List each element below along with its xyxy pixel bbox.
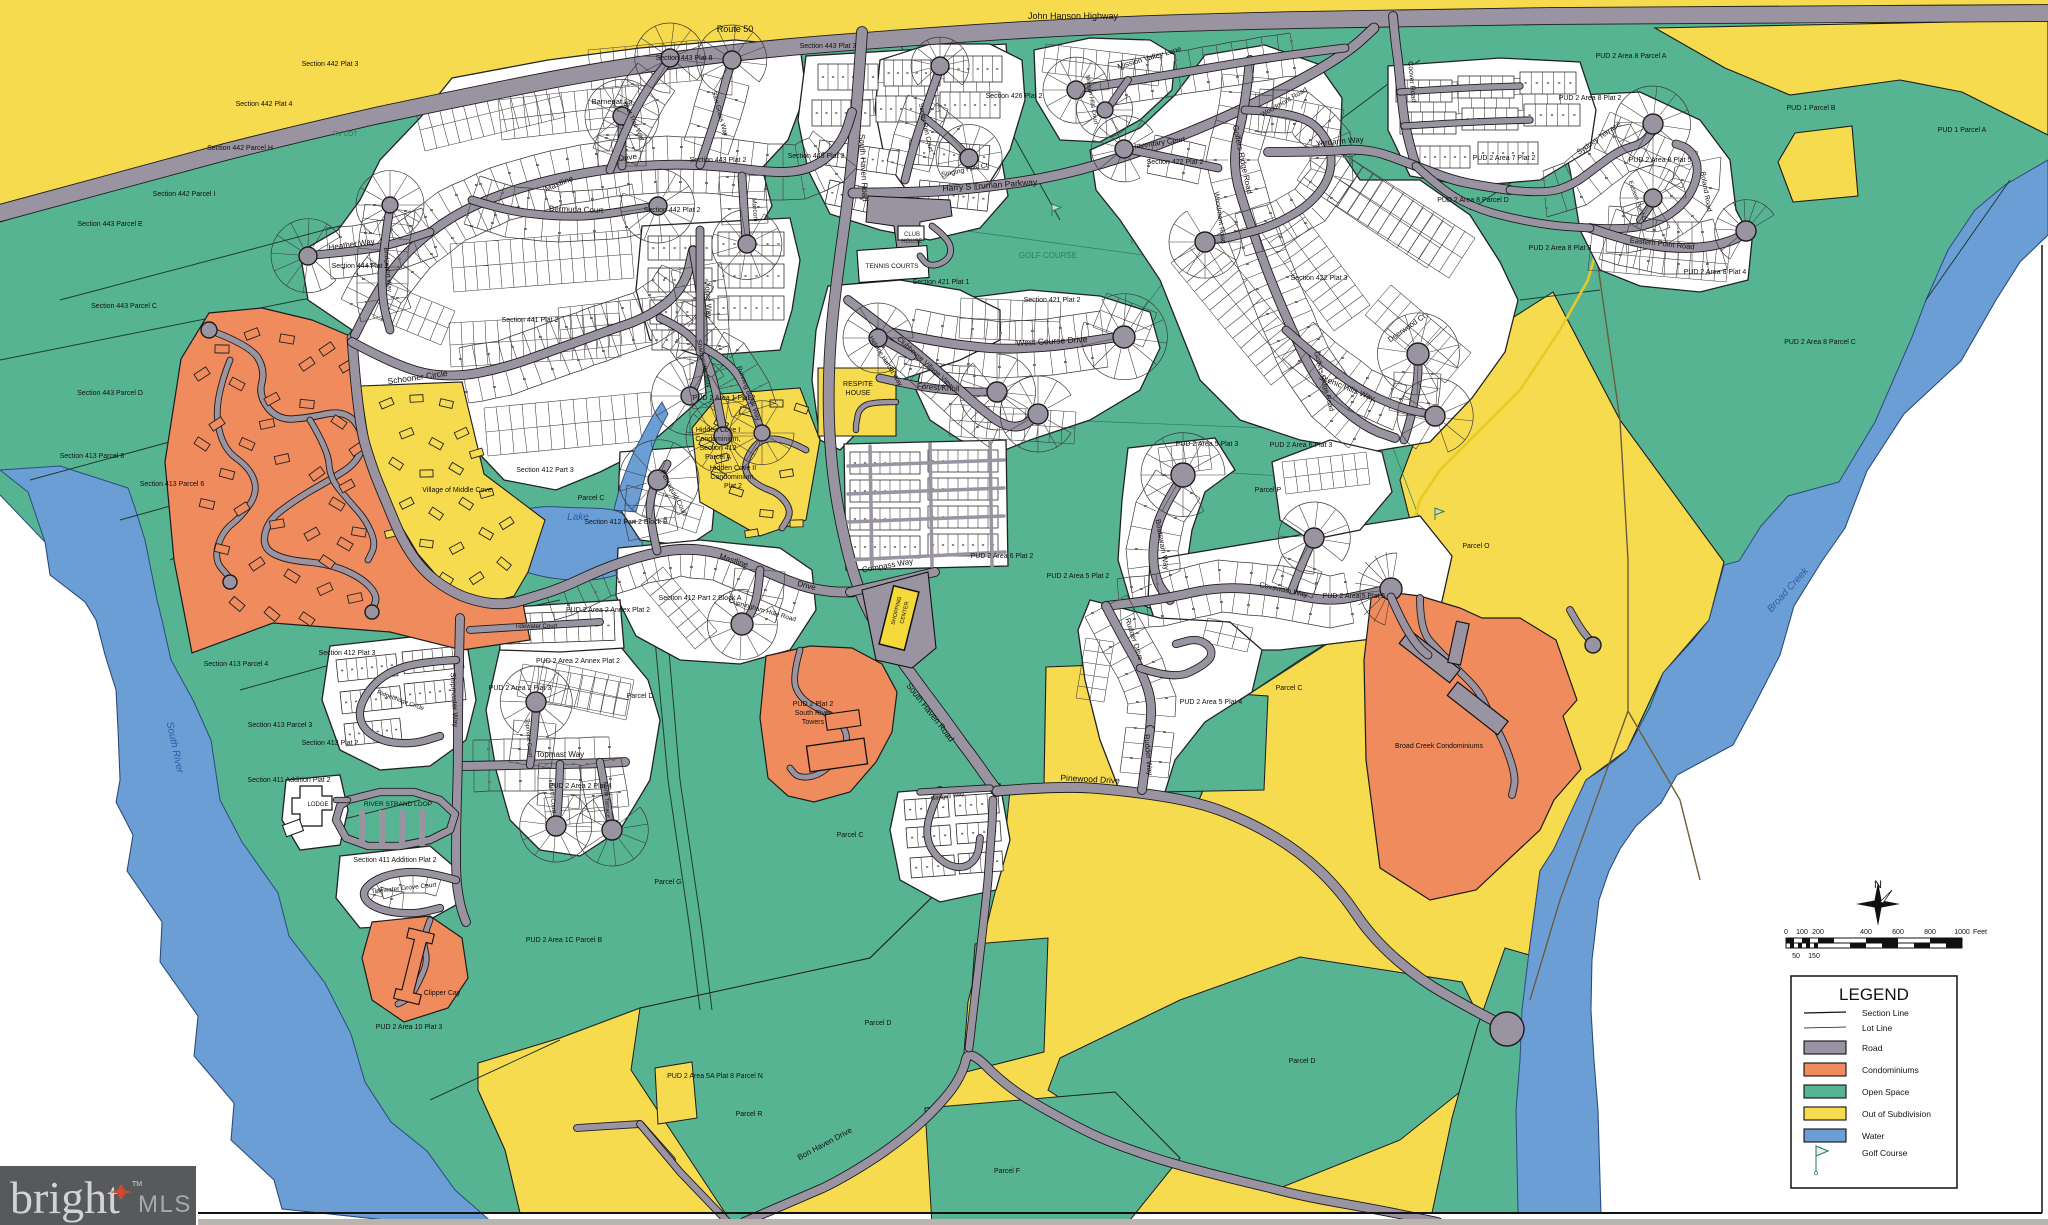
svg-text:PUD 2 Area 5 Plat 5: PUD 2 Area 5 Plat 5 bbox=[1323, 593, 1386, 600]
svg-text:PUD 2 Area 8 Parcel D: PUD 2 Area 8 Parcel D bbox=[1437, 197, 1509, 204]
svg-text:Broad Creek Condominiums: Broad Creek Condominiums bbox=[1395, 743, 1483, 750]
svg-text:South River: South River bbox=[795, 710, 832, 717]
svg-text:Section 413 Parcel 6: Section 413 Parcel 6 bbox=[140, 481, 205, 488]
svg-text:Parcel D: Parcel D bbox=[1289, 1058, 1316, 1065]
svg-text:PUD 2 Area 7 Plat 2: PUD 2 Area 7 Plat 2 bbox=[1473, 155, 1536, 162]
svg-text:Parcel O: Parcel O bbox=[1462, 543, 1490, 550]
svg-text:Parcel C: Parcel C bbox=[837, 832, 864, 839]
svg-text:PUD 1 Parcel B: PUD 1 Parcel B bbox=[1786, 105, 1835, 112]
svg-text:PUD 2 Area 5 Plat 3: PUD 2 Area 5 Plat 3 bbox=[1176, 441, 1239, 448]
svg-text:Section 443 Parcel D: Section 443 Parcel D bbox=[77, 390, 143, 397]
svg-text:PUD 2 Area 8 Parcel A: PUD 2 Area 8 Parcel A bbox=[1596, 53, 1667, 60]
svg-text:Section 442 Parcel I: Section 442 Parcel I bbox=[153, 191, 216, 198]
svg-text:Section 411 Addition Plat 2: Section 411 Addition Plat 2 bbox=[247, 777, 330, 784]
svg-text:CLUB: CLUB bbox=[904, 232, 920, 238]
svg-text:Section 445 Plat 2: Section 445 Plat 2 bbox=[788, 153, 845, 160]
svg-text:Section 413 Parcel 8: Section 413 Parcel 8 bbox=[60, 453, 125, 460]
svg-text:0: 0 bbox=[1784, 929, 1788, 936]
svg-text:Plat 2: Plat 2 bbox=[724, 483, 742, 490]
svg-text:Section 413 Parcel 3: Section 413 Parcel 3 bbox=[248, 722, 313, 729]
svg-text:Section 422 Plat 3: Section 422 Plat 3 bbox=[1291, 275, 1348, 282]
svg-text:PUD 2 Area 8 Parcel C: PUD 2 Area 8 Parcel C bbox=[1784, 339, 1856, 346]
svg-text:Parcel C: Parcel C bbox=[578, 495, 605, 502]
svg-text:TENNIS COURTS: TENNIS COURTS bbox=[866, 263, 920, 270]
svg-text:Section 442 Plat 3: Section 442 Plat 3 bbox=[302, 61, 359, 68]
svg-text:Section 441 Plat 2: Section 441 Plat 2 bbox=[502, 317, 559, 324]
svg-text:Section 443 Parcel C: Section 443 Parcel C bbox=[91, 303, 157, 310]
svg-text:Parcel C: Parcel C bbox=[1276, 685, 1303, 692]
svg-text:Towers: Towers bbox=[802, 719, 825, 726]
svg-text:John Hanson Highway: John Hanson Highway bbox=[1028, 11, 1119, 21]
svg-text:Section 443 Plat 2: Section 443 Plat 2 bbox=[690, 157, 747, 164]
svg-text:LEGEND: LEGEND bbox=[1839, 985, 1909, 1004]
svg-text:PUD 2 Area 6 Plat 2: PUD 2 Area 6 Plat 2 bbox=[971, 553, 1034, 560]
svg-text:Lot Line: Lot Line bbox=[1862, 1023, 1893, 1033]
svg-text:HOUSE: HOUSE bbox=[846, 390, 871, 397]
svg-text:Topmast Way: Topmast Way bbox=[536, 750, 584, 759]
svg-text:Parcel D: Parcel D bbox=[627, 693, 654, 700]
svg-text:PUD 2 Area 1 Plat 2: PUD 2 Area 1 Plat 2 bbox=[693, 395, 756, 402]
svg-text:200: 200 bbox=[1812, 929, 1824, 936]
svg-text:Section 412 Plat 3: Section 412 Plat 3 bbox=[319, 650, 376, 657]
svg-text:Section 444 Plat 2: Section 444 Plat 2 bbox=[332, 263, 389, 270]
svg-text:Section 421 Plat 1: Section 421 Plat 1 bbox=[913, 279, 970, 286]
svg-text:Section 442 Plat 4: Section 442 Plat 4 bbox=[236, 101, 293, 108]
svg-text:PUD 2 Area 6 Plat 3: PUD 2 Area 6 Plat 3 bbox=[1270, 442, 1333, 449]
svg-text:GOLF COURSE: GOLF COURSE bbox=[1019, 251, 1077, 260]
svg-text:Parcel P: Parcel P bbox=[1255, 487, 1282, 494]
svg-text:Section 442 Plat 2: Section 442 Plat 2 bbox=[644, 207, 701, 214]
svg-text:Section 443 Plat 8: Section 443 Plat 8 bbox=[656, 55, 713, 62]
svg-text:PUD 2 Area 8 Plat 4: PUD 2 Area 8 Plat 4 bbox=[1684, 269, 1747, 276]
svg-text:PUD 2 Area 2 Plat 3: PUD 2 Area 2 Plat 3 bbox=[489, 685, 552, 692]
svg-text:PUD 2 Area 5 Plat 2: PUD 2 Area 5 Plat 2 bbox=[1047, 573, 1110, 580]
svg-text:HOUSE: HOUSE bbox=[901, 239, 922, 245]
svg-text:Road: Road bbox=[1862, 1043, 1883, 1053]
svg-text:PUD 2 Area 1C Parcel B: PUD 2 Area 1C Parcel B bbox=[526, 937, 603, 944]
svg-text:Section 426 Plat 2: Section 426 Plat 2 bbox=[986, 93, 1043, 100]
svg-text:PUD 2 Area 5A Plat 8 Parcel N: PUD 2 Area 5A Plat 8 Parcel N bbox=[667, 1073, 763, 1080]
svg-text:Condominium,: Condominium, bbox=[695, 436, 740, 443]
svg-text:Water: Water bbox=[1862, 1131, 1885, 1141]
svg-text:Parcel G: Parcel G bbox=[654, 879, 681, 886]
svg-text:Route 50: Route 50 bbox=[717, 24, 754, 34]
svg-text:Feet: Feet bbox=[1973, 929, 1987, 936]
svg-text:50: 50 bbox=[1792, 953, 1800, 960]
svg-text:Section 413 Plat 2: Section 413 Plat 2 bbox=[302, 740, 359, 747]
svg-text:Section 413 Parcel 4: Section 413 Parcel 4 bbox=[204, 661, 269, 668]
svg-text:100: 100 bbox=[1796, 929, 1808, 936]
svg-text:PUD 2 Area 10 Plat 3: PUD 2 Area 10 Plat 3 bbox=[376, 1024, 443, 1031]
svg-text:PUD 2 Area 2 Plat 4: PUD 2 Area 2 Plat 4 bbox=[549, 783, 612, 790]
svg-text:Tidewater Court: Tidewater Court bbox=[515, 624, 558, 630]
svg-text:Parcel A: Parcel A bbox=[705, 454, 731, 461]
svg-text:Bermuda Court: Bermuda Court bbox=[549, 204, 604, 215]
svg-text:PUD 2 Area 2 Annex Plat 2: PUD 2 Area 2 Annex Plat 2 bbox=[566, 607, 650, 614]
svg-text:MLS: MLS bbox=[138, 1191, 192, 1218]
svg-text:Open Space: Open Space bbox=[1862, 1087, 1910, 1097]
svg-text:600: 600 bbox=[1892, 929, 1904, 936]
svg-text:Section 411 Addition Plat 2: Section 411 Addition Plat 2 bbox=[353, 857, 436, 864]
svg-text:RESPITE: RESPITE bbox=[843, 381, 873, 388]
svg-text:RIVER STRAND LOOP: RIVER STRAND LOOP bbox=[364, 801, 432, 808]
svg-text:Condominium,: Condominium, bbox=[710, 474, 755, 481]
svg-text:RV LOT: RV LOT bbox=[332, 131, 358, 138]
svg-text:Section 412 Part 3: Section 412 Part 3 bbox=[516, 467, 574, 474]
svg-text:PUD 2 Area 8 Plat 3: PUD 2 Area 8 Plat 3 bbox=[1529, 245, 1592, 252]
svg-text:Parcel R: Parcel R bbox=[736, 1111, 763, 1118]
svg-text:Section 412 Part 2 Block A: Section 412 Part 2 Block A bbox=[659, 595, 742, 602]
svg-text:Section 442 Parcel H: Section 442 Parcel H bbox=[207, 145, 273, 152]
svg-text:PUD 2 Area 8 Plat 5: PUD 2 Area 8 Plat 5 bbox=[1629, 157, 1692, 164]
svg-text:Condominiums: Condominiums bbox=[1862, 1065, 1919, 1075]
svg-text:Section Line: Section Line bbox=[1862, 1008, 1909, 1018]
svg-text:LODGE: LODGE bbox=[307, 802, 328, 808]
svg-text:Parcel F: Parcel F bbox=[994, 1168, 1020, 1175]
svg-text:PUD 2 Area 2 Annex Plat 2: PUD 2 Area 2 Annex Plat 2 bbox=[536, 658, 620, 665]
svg-text:PUD 2 Plat 2: PUD 2 Plat 2 bbox=[793, 701, 834, 708]
svg-text:Parcel D: Parcel D bbox=[865, 1020, 892, 1027]
svg-text:Section 412 Part 2 Block B: Section 412 Part 2 Block B bbox=[584, 519, 668, 526]
svg-text:800: 800 bbox=[1924, 929, 1936, 936]
svg-text:PUD 2 Area 5 Plat 4: PUD 2 Area 5 Plat 4 bbox=[1180, 699, 1243, 706]
svg-text:N: N bbox=[1874, 879, 1882, 891]
svg-text:Village of Middle Cove: Village of Middle Cove bbox=[422, 487, 492, 494]
svg-text:Hidden Cove II: Hidden Cove II bbox=[710, 465, 756, 472]
svg-text:Section 443 Parcel E: Section 443 Parcel E bbox=[77, 221, 143, 228]
svg-text:Clipper Cay: Clipper Cay bbox=[424, 990, 461, 997]
svg-text:Golf Course: Golf Course bbox=[1862, 1148, 1908, 1158]
svg-text:bright: bright bbox=[10, 1172, 120, 1223]
svg-text:1000: 1000 bbox=[1954, 929, 1970, 936]
svg-text:Hidden Cove I: Hidden Cove I bbox=[696, 427, 740, 434]
svg-text:Section 422 Plat 2: Section 422 Plat 2 bbox=[1147, 159, 1204, 166]
svg-text:Section 443 Plat 3: Section 443 Plat 3 bbox=[800, 43, 857, 50]
svg-text:Section 421 Plat 2: Section 421 Plat 2 bbox=[1024, 297, 1081, 304]
svg-text:PUD 1 Parcel A: PUD 1 Parcel A bbox=[1938, 127, 1987, 134]
svg-text:PUD 2 Area 8 Plat 2: PUD 2 Area 8 Plat 2 bbox=[1559, 95, 1622, 102]
svg-text:150: 150 bbox=[1808, 953, 1820, 960]
svg-text:Section 412: Section 412 bbox=[700, 445, 737, 452]
svg-text:Out of Subdivision: Out of Subdivision bbox=[1862, 1109, 1931, 1119]
svg-text:400: 400 bbox=[1860, 929, 1872, 936]
svg-text:TM: TM bbox=[132, 1181, 142, 1188]
